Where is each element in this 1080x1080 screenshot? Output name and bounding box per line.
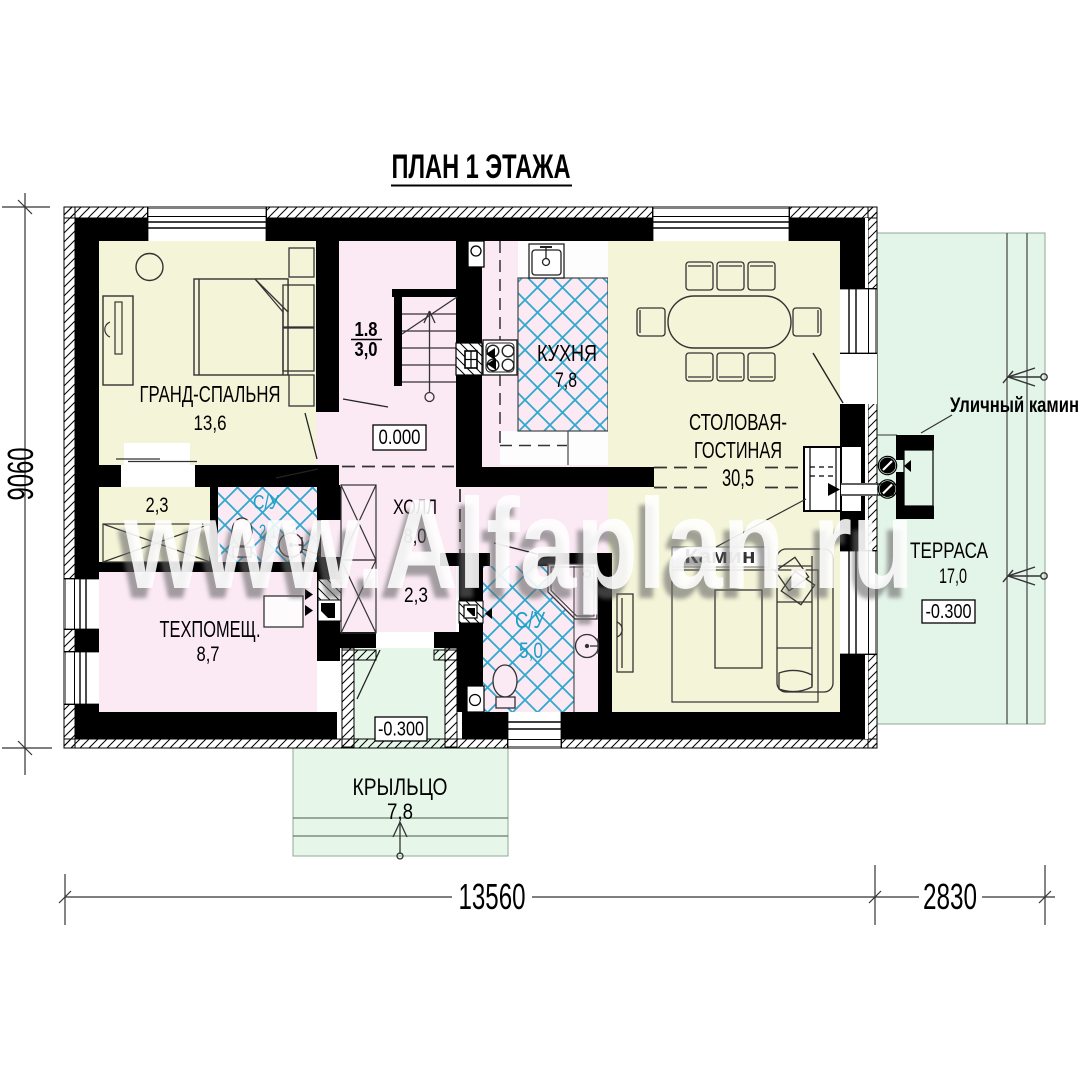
svg-text:ГРАНД-СПАЛЬНЯ: ГРАНД-СПАЛЬНЯ bbox=[140, 381, 281, 407]
svg-text:13560: 13560 bbox=[459, 876, 526, 917]
svg-text:7,8: 7,8 bbox=[555, 369, 577, 392]
svg-text:Уличный камин: Уличный камин bbox=[950, 394, 1079, 417]
svg-text:3,0: 3,0 bbox=[355, 339, 378, 361]
svg-text:ПЛАН 1 ЭТАЖА: ПЛАН 1 ЭТАЖА bbox=[392, 148, 571, 186]
svg-text:0.000: 0.000 bbox=[379, 426, 421, 449]
svg-text:-0.300: -0.300 bbox=[378, 719, 424, 741]
svg-text:1.8: 1.8 bbox=[355, 319, 378, 341]
svg-text:КУХНЯ: КУХНЯ bbox=[537, 340, 597, 366]
svg-text:8,7: 8,7 bbox=[197, 643, 220, 666]
svg-text:www.Alfaplan.ru: www.Alfaplan.ru bbox=[123, 473, 914, 616]
svg-text:СТОЛОВАЯ-: СТОЛОВАЯ- bbox=[689, 409, 787, 435]
svg-text:17,0: 17,0 bbox=[939, 565, 967, 588]
svg-text:ТЕРРАСА: ТЕРРАСА bbox=[910, 538, 988, 563]
svg-text:2830: 2830 bbox=[923, 876, 977, 917]
svg-text:КРЫЛЬЦО: КРЫЛЬЦО bbox=[353, 774, 448, 801]
svg-text:ГОСТИНАЯ: ГОСТИНАЯ bbox=[694, 437, 782, 463]
svg-text:13,6: 13,6 bbox=[194, 412, 227, 435]
svg-text:-0.300: -0.300 bbox=[926, 601, 972, 623]
svg-text:7,8: 7,8 bbox=[387, 799, 413, 824]
svg-text:5,0: 5,0 bbox=[519, 638, 543, 663]
svg-text:9060: 9060 bbox=[0, 448, 41, 501]
